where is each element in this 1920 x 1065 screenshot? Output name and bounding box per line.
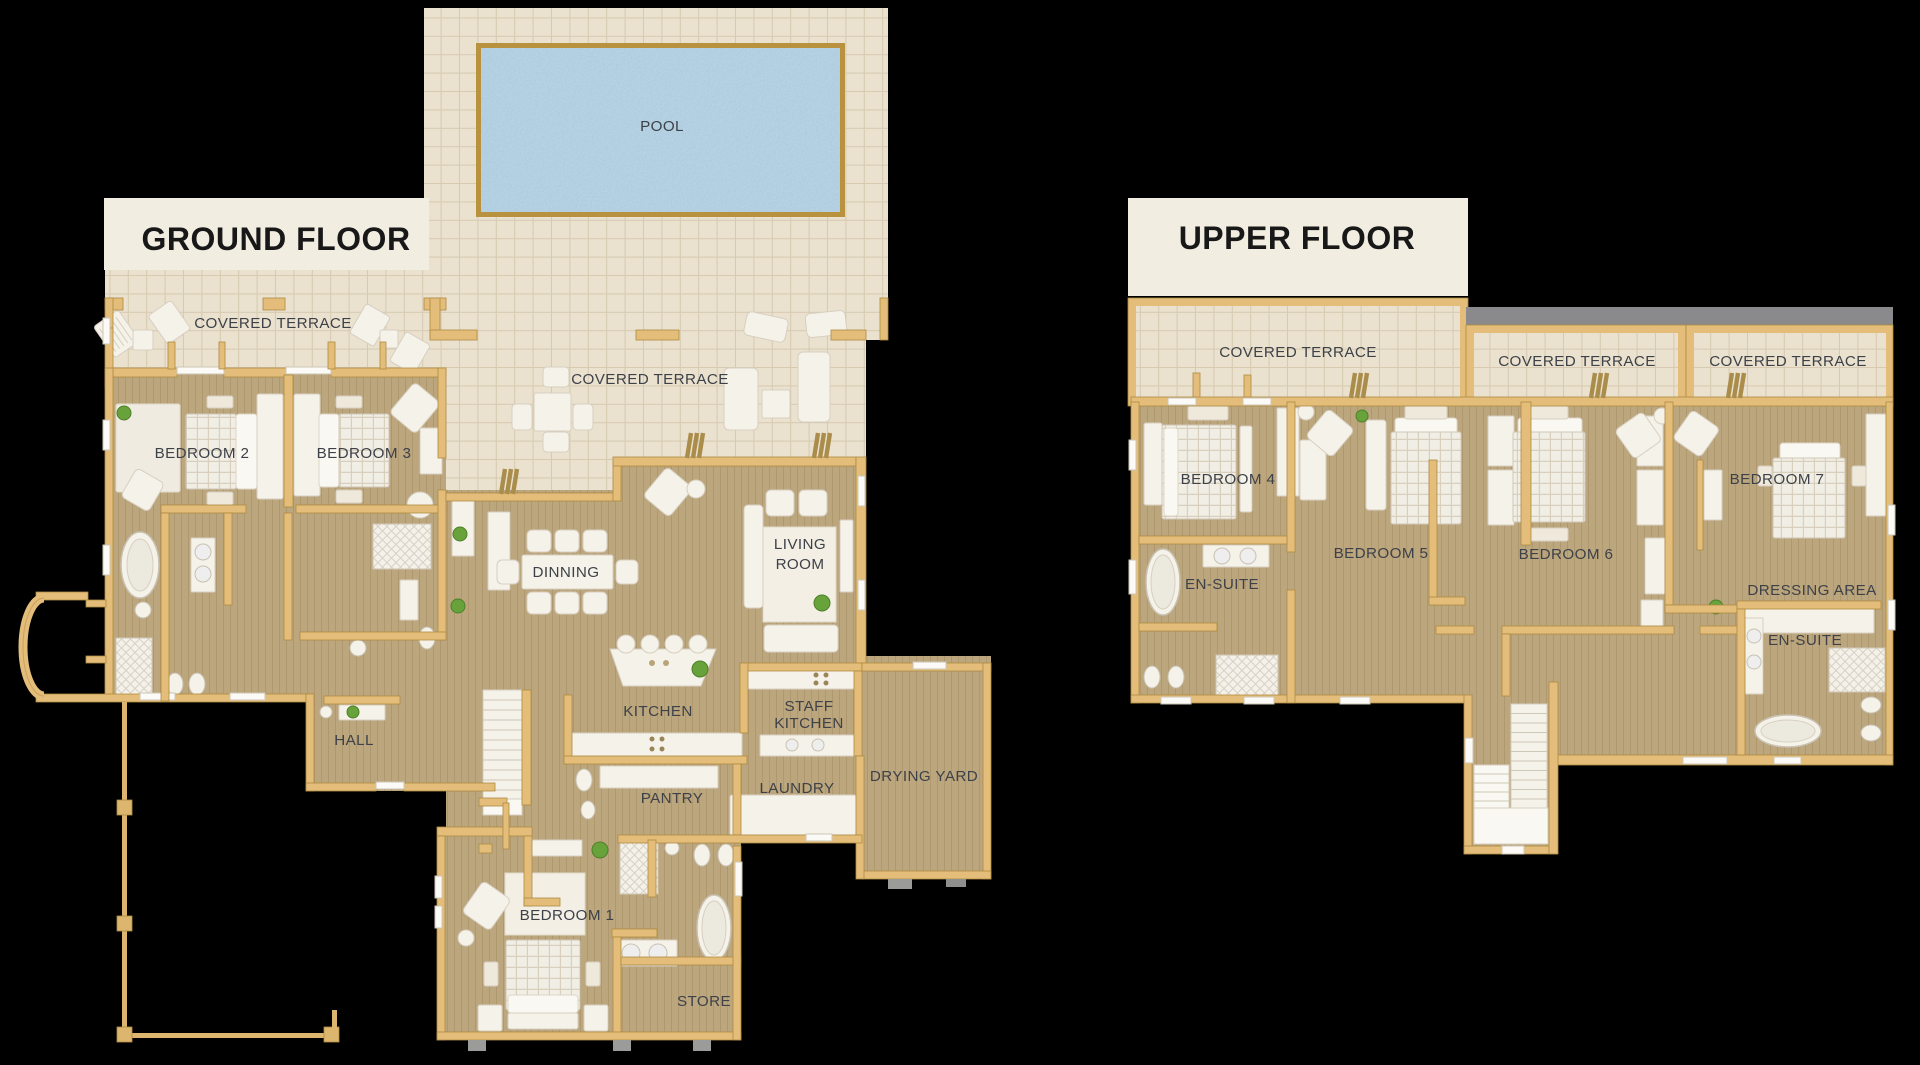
svg-text:BEDROOM 3: BEDROOM 3 [317,445,412,462]
svg-text:COVERED TERRACE: COVERED TERRACE [1498,353,1656,370]
svg-text:BEDROOM 2: BEDROOM 2 [155,445,250,462]
svg-text:GROUND FLOOR: GROUND FLOOR [141,221,410,257]
svg-text:ROOM: ROOM [776,556,825,573]
svg-text:BEDROOM 6: BEDROOM 6 [1519,546,1614,563]
svg-text:HALL: HALL [334,732,374,749]
svg-text:LIVING: LIVING [774,536,826,553]
svg-text:DINNING: DINNING [533,564,600,581]
svg-text:BEDROOM 5: BEDROOM 5 [1334,545,1429,562]
svg-text:BEDROOM 7: BEDROOM 7 [1730,471,1825,488]
svg-text:KITCHEN: KITCHEN [623,703,692,720]
svg-text:BEDROOM 1: BEDROOM 1 [520,907,615,924]
svg-text:COVERED TERRACE: COVERED TERRACE [1219,344,1377,361]
svg-text:EN-SUITE: EN-SUITE [1768,632,1842,649]
svg-text:LAUNDRY: LAUNDRY [759,780,834,797]
svg-text:DRYING YARD: DRYING YARD [870,768,978,785]
svg-text:POOL: POOL [640,118,684,135]
svg-text:COVERED TERRACE: COVERED TERRACE [571,371,729,388]
svg-text:UPPER FLOOR: UPPER FLOOR [1179,220,1416,256]
svg-text:STAFF: STAFF [785,698,834,715]
svg-text:PANTRY: PANTRY [641,790,704,807]
svg-text:COVERED TERRACE: COVERED TERRACE [194,315,352,332]
svg-text:DRESSING AREA: DRESSING AREA [1747,582,1877,599]
svg-text:STORE: STORE [677,993,731,1010]
svg-text:KITCHEN: KITCHEN [774,715,843,732]
svg-text:COVERED TERRACE: COVERED TERRACE [1709,353,1867,370]
svg-text:BEDROOM 4: BEDROOM 4 [1181,471,1276,488]
svg-text:EN-SUITE: EN-SUITE [1185,576,1259,593]
